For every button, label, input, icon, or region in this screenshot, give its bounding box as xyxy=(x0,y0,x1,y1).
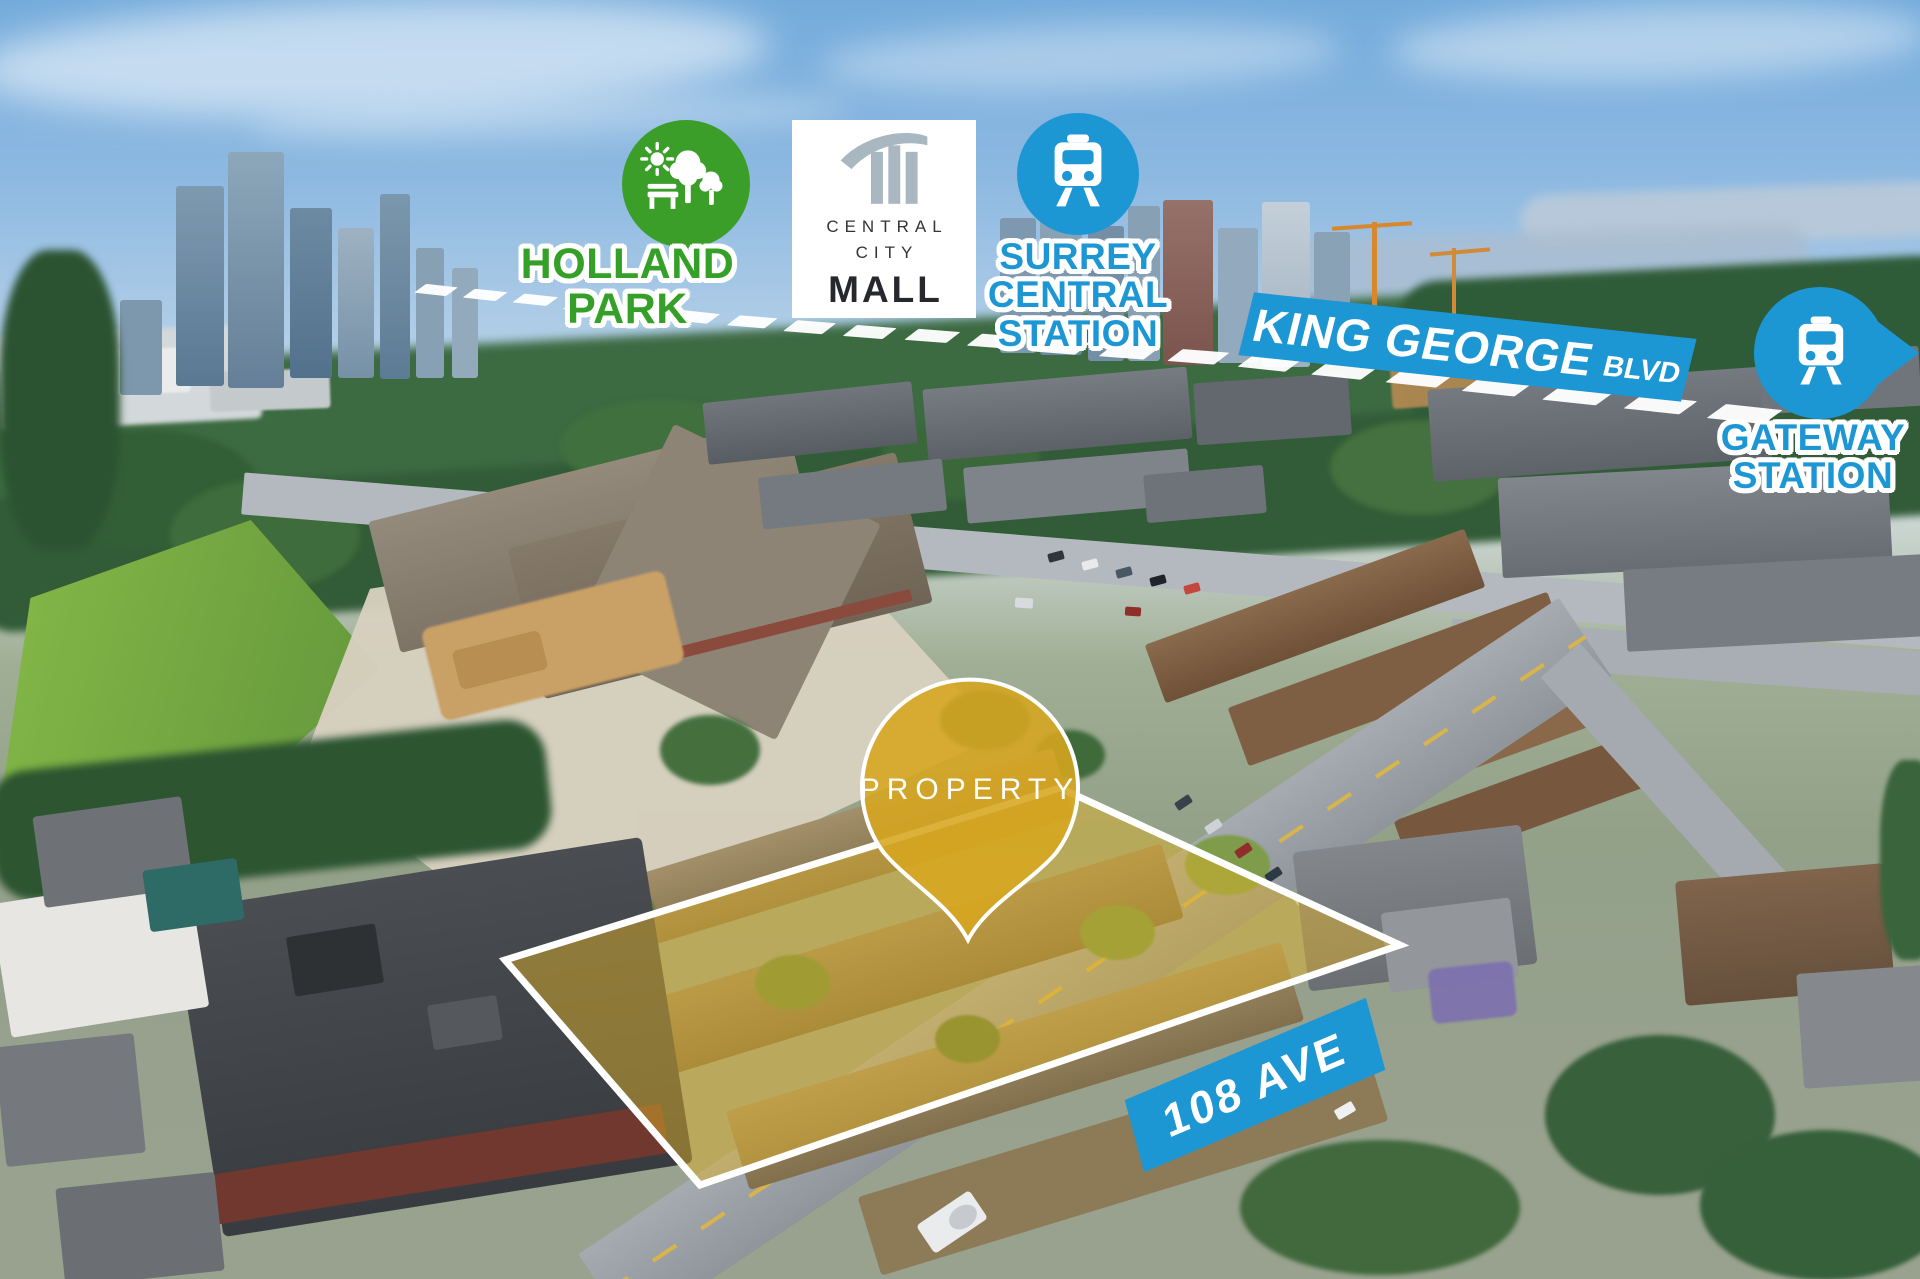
scenery-shape xyxy=(1174,794,1193,811)
scenery-shape xyxy=(0,250,120,550)
surrey-label-line3: STATION xyxy=(925,315,1231,353)
scenery-shape xyxy=(380,194,410,379)
scenery-shape xyxy=(819,16,1341,99)
scenery-shape xyxy=(1185,835,1270,895)
property-pin: PROPERTY xyxy=(838,653,1102,953)
park-trees-bench-sun-icon xyxy=(638,134,734,235)
scenery-shape xyxy=(416,248,444,378)
train-icon xyxy=(1039,133,1117,216)
king-george-blvd-suffix: BLVD xyxy=(1599,340,1686,390)
tower-swoosh-icon xyxy=(829,128,939,211)
aerial-property-scene: KING GEORGE BLVD 108 AVE xyxy=(0,0,1920,1279)
scenery-shape xyxy=(660,715,760,785)
holland-park-label-line1: HOLLAND xyxy=(455,242,800,287)
scenery-shape xyxy=(142,858,245,933)
scenery-shape xyxy=(290,208,332,378)
surrey-label-line2: CENTRAL xyxy=(925,276,1231,314)
scenery-shape xyxy=(1193,373,1352,446)
mall-label-line1: CENTRAL xyxy=(820,217,947,237)
holland-park-label: HOLLAND PARK xyxy=(455,242,800,331)
scenery-shape xyxy=(338,228,374,378)
scenery-shape xyxy=(120,300,162,395)
gateway-station-marker xyxy=(1735,268,1920,438)
scenery-shape xyxy=(935,1015,1000,1063)
scenery-shape xyxy=(1427,961,1517,1025)
scenery-shape xyxy=(1015,597,1034,608)
scenery-shape xyxy=(1623,554,1920,652)
scenery-shape xyxy=(55,1172,224,1279)
scenery-shape xyxy=(1240,1140,1520,1275)
scenery-shape xyxy=(1880,760,1920,960)
scenery-shape xyxy=(755,955,830,1010)
property-pin-label: PROPERTY xyxy=(860,773,1081,806)
scenery-shape xyxy=(176,186,224,386)
holland-park-marker xyxy=(622,120,750,248)
surrey-label-line1: SURREY xyxy=(925,238,1231,276)
surrey-central-station-marker xyxy=(1017,113,1139,235)
surrey-central-station-label: SURREY CENTRAL STATION xyxy=(925,238,1231,353)
scenery-shape xyxy=(1796,962,1920,1089)
gateway-label-line1: GATEWAY xyxy=(1663,419,1920,457)
scenery-shape xyxy=(1125,606,1142,616)
scenery-shape xyxy=(0,1033,146,1167)
map-pin-icon xyxy=(862,680,1078,940)
scenery-shape xyxy=(1389,0,1920,89)
scenery-shape xyxy=(228,152,284,388)
mall-label-line2: CITY xyxy=(850,243,919,263)
gateway-station-label: GATEWAY STATION xyxy=(1663,419,1920,496)
holland-park-label-line2: PARK xyxy=(455,287,800,332)
gateway-label-line2: STATION xyxy=(1663,457,1920,495)
